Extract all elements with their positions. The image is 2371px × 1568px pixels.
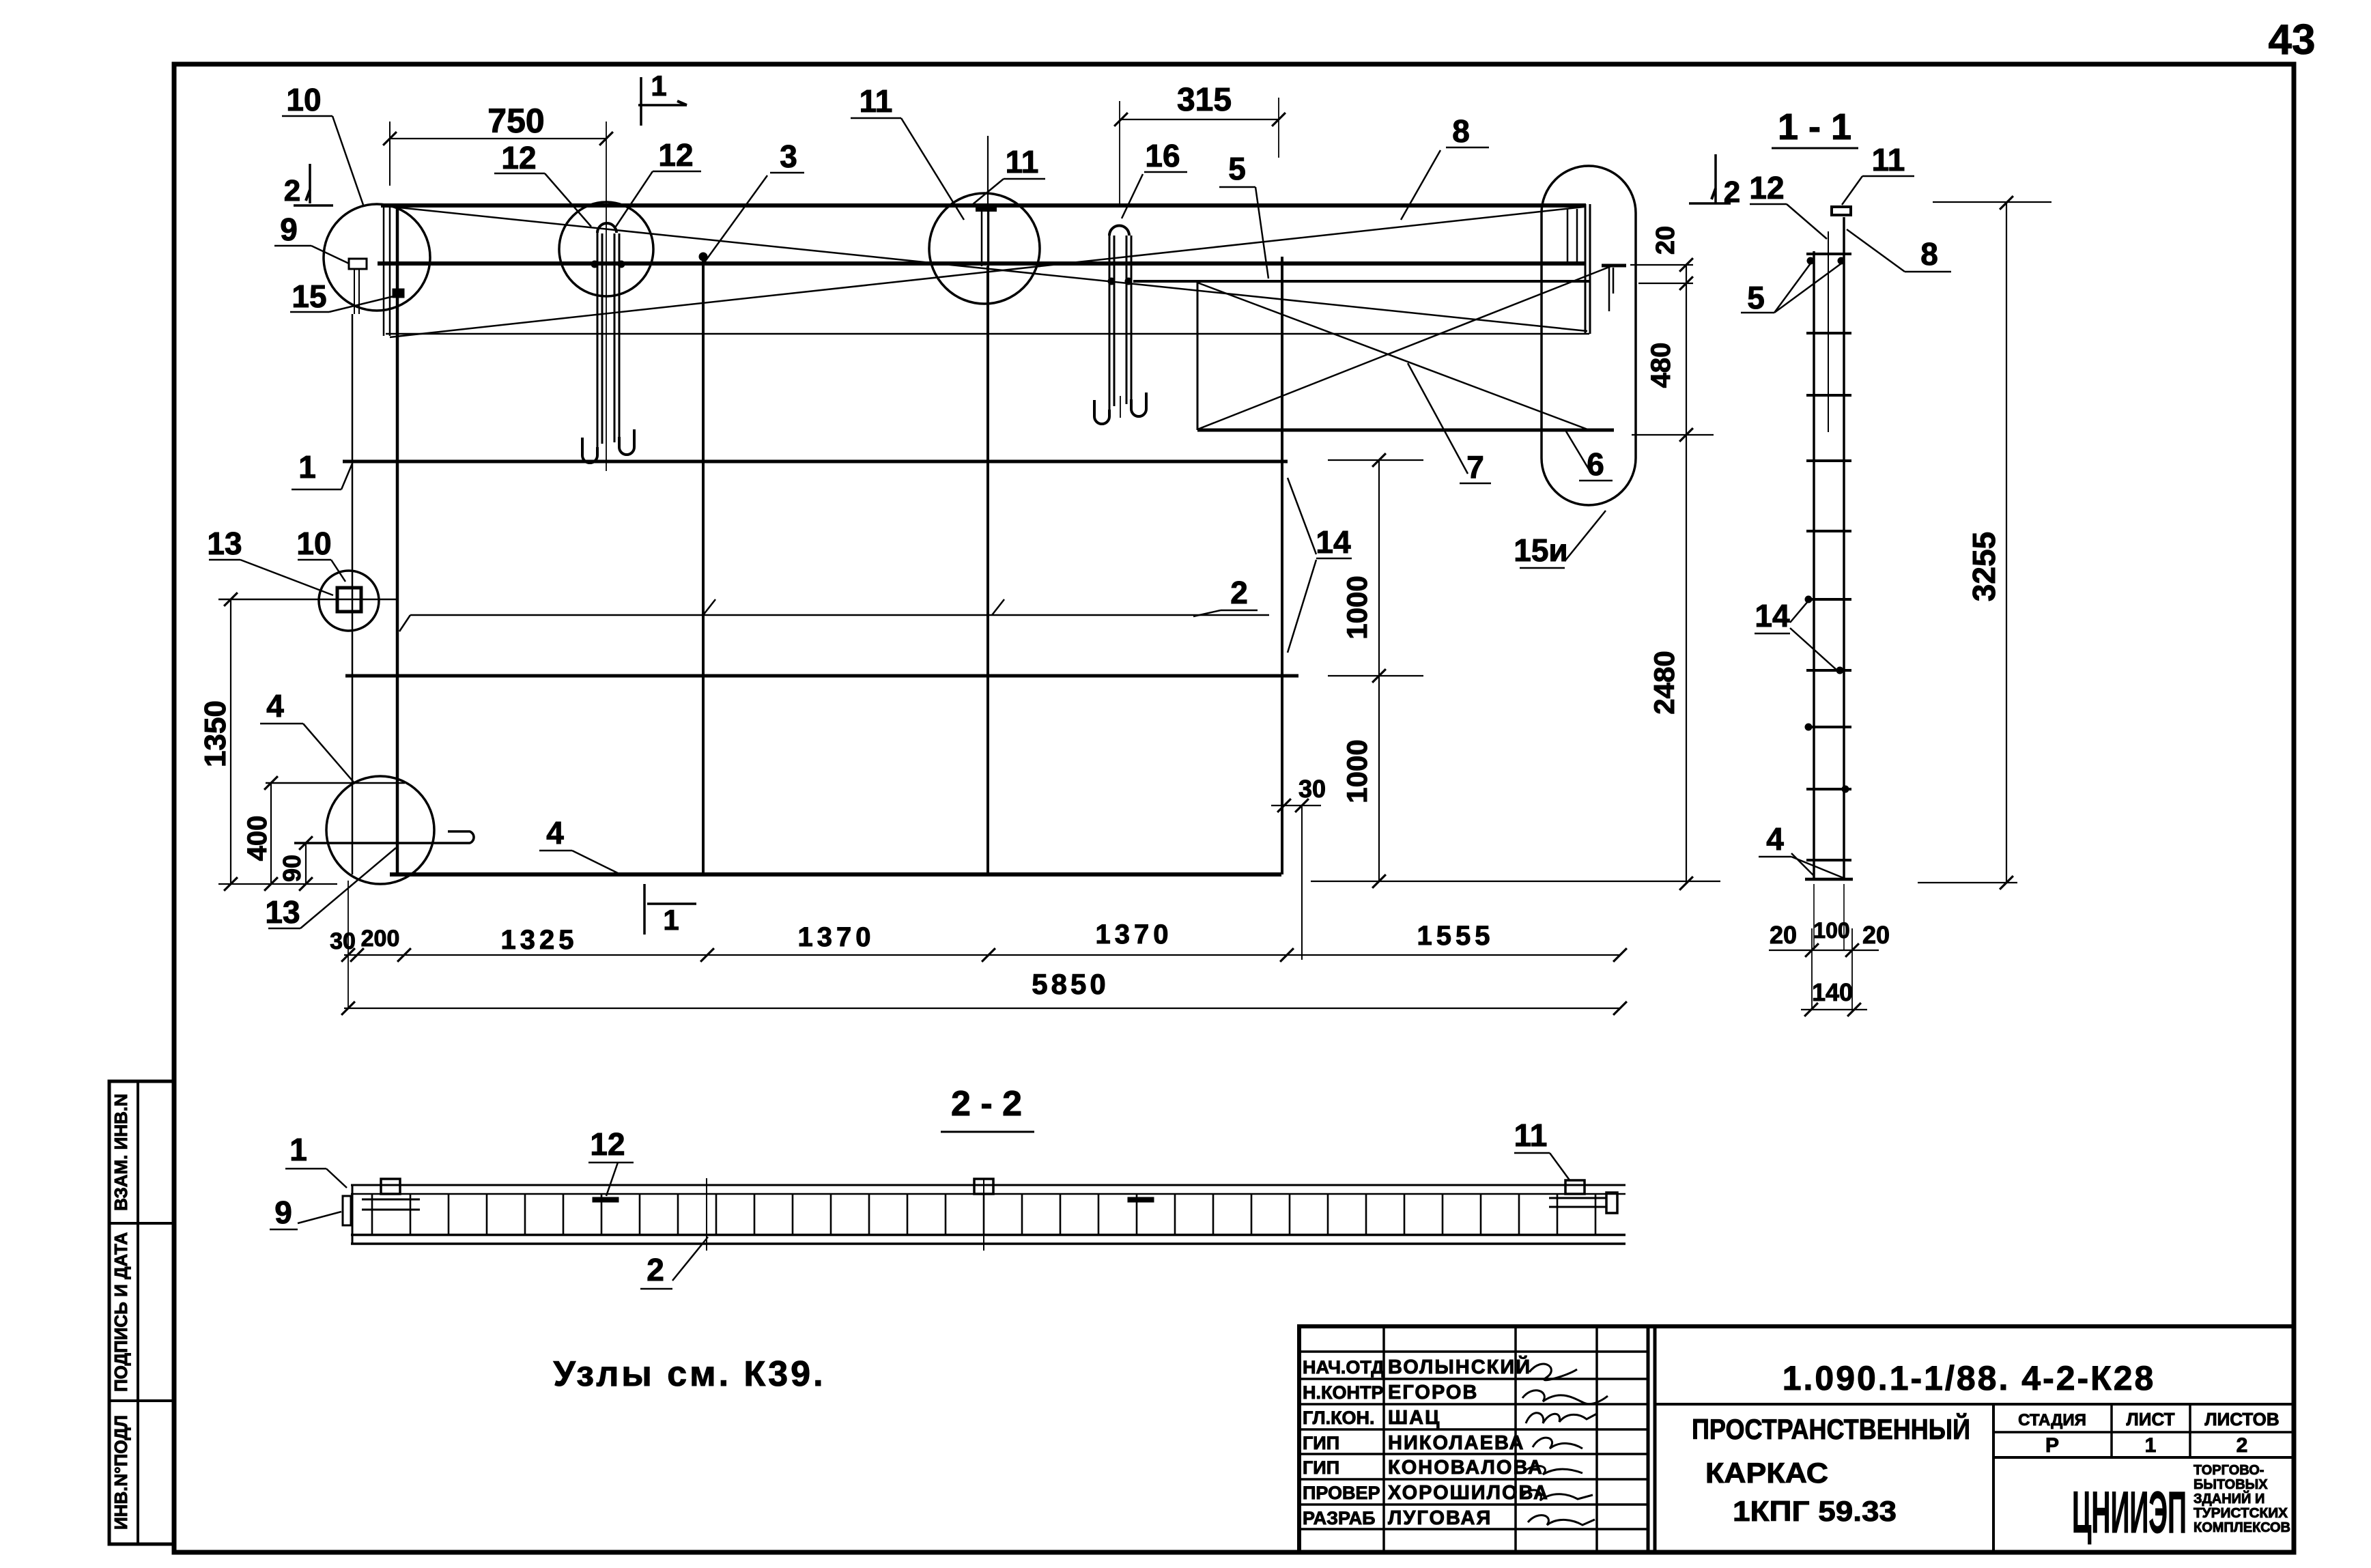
svg-text:СТАДИЯ: СТАДИЯ <box>2018 1411 2086 1429</box>
svg-text:НАЧ.ОТД: НАЧ.ОТД <box>1303 1357 1384 1378</box>
svg-text:10: 10 <box>296 526 331 561</box>
svg-text:ПРОСТРАНСТВЕННЫЙ: ПРОСТРАНСТВЕННЫЙ <box>1692 1412 1970 1445</box>
svg-text:ЦНИИЭП: ЦНИИЭП <box>2072 1480 2187 1545</box>
svg-text:ЛИСТОВ: ЛИСТОВ <box>2204 1409 2279 1429</box>
svg-text:4: 4 <box>1766 821 1784 857</box>
svg-text:14: 14 <box>1755 598 1790 633</box>
svg-text:9: 9 <box>274 1195 292 1230</box>
svg-text:1: 1 <box>298 449 316 485</box>
svg-text:750: 750 <box>487 102 544 140</box>
svg-text:1350: 1350 <box>199 700 232 767</box>
svg-text:1000: 1000 <box>1341 739 1373 803</box>
svg-text:Р: Р <box>2045 1434 2059 1457</box>
svg-text:20: 20 <box>1862 921 1890 949</box>
svg-text:30: 30 <box>1298 775 1326 803</box>
svg-text:ВОЛЫНСКИЙ: ВОЛЫНСКИЙ <box>1388 1355 1531 1378</box>
svg-text:30: 30 <box>330 928 356 954</box>
svg-text:200: 200 <box>361 926 400 952</box>
svg-text:20: 20 <box>1770 921 1797 949</box>
svg-text:ТУРИСТСКИХ: ТУРИСТСКИХ <box>2193 1506 2288 1521</box>
svg-text:11: 11 <box>1872 142 1905 177</box>
svg-text:1000: 1000 <box>1341 575 1373 639</box>
svg-text:12: 12 <box>501 140 536 175</box>
svg-text:5850: 5850 <box>1032 968 1109 1000</box>
svg-text:ЕГОРОВ: ЕГОРОВ <box>1388 1382 1478 1403</box>
svg-text:1370: 1370 <box>1096 920 1173 950</box>
svg-text:3255: 3255 <box>1966 532 2002 601</box>
svg-text:2: 2 <box>284 174 300 208</box>
svg-text:2480: 2480 <box>1648 651 1680 714</box>
svg-text:БЫТОВЫХ: БЫТОВЫХ <box>2193 1477 2268 1492</box>
svg-text:Н.КОНТР: Н.КОНТР <box>1303 1382 1383 1403</box>
svg-text:4: 4 <box>546 815 564 851</box>
svg-text:1: 1 <box>651 70 666 102</box>
svg-text:12: 12 <box>1749 170 1784 205</box>
svg-text:2: 2 <box>1230 575 1248 610</box>
svg-text:13: 13 <box>207 526 242 561</box>
svg-text:90: 90 <box>278 855 306 882</box>
svg-text:ИНВ.N°ПОДЛ: ИНВ.N°ПОДЛ <box>111 1415 131 1530</box>
svg-text:100: 100 <box>1813 918 1849 943</box>
svg-text:КОНОВАЛОВА: КОНОВАЛОВА <box>1388 1457 1544 1479</box>
svg-text:1325: 1325 <box>501 925 578 955</box>
svg-text:1370: 1370 <box>798 922 875 952</box>
svg-text:КАРКАС: КАРКАС <box>1705 1457 1828 1489</box>
svg-text:3: 3 <box>780 139 797 174</box>
svg-text:15и: 15и <box>1514 532 1567 568</box>
svg-text:2 - 2: 2 - 2 <box>951 1084 1022 1124</box>
svg-text:ГЛ.КОН.: ГЛ.КОН. <box>1303 1408 1375 1428</box>
svg-text:5: 5 <box>1228 151 1246 186</box>
svg-text:2: 2 <box>647 1252 664 1287</box>
svg-text:9: 9 <box>280 212 298 247</box>
svg-text:1555: 1555 <box>1417 921 1494 951</box>
svg-text:Узлы см. К39.: Узлы см. К39. <box>553 1354 825 1394</box>
svg-text:ПРОВЕР: ПРОВЕР <box>1303 1483 1380 1503</box>
svg-text:ГИП: ГИП <box>1303 1457 1339 1478</box>
svg-text:15: 15 <box>292 279 326 314</box>
svg-text:ЗДАНИЙ И: ЗДАНИЙ И <box>2193 1490 2264 1507</box>
svg-text:ШАЦ: ШАЦ <box>1388 1407 1440 1429</box>
svg-text:ПОДПИСЬ И ДАТА: ПОДПИСЬ И ДАТА <box>111 1232 131 1392</box>
svg-text:11: 11 <box>1006 144 1039 180</box>
svg-text:1: 1 <box>2145 1434 2157 1457</box>
svg-text:480: 480 <box>1646 343 1676 388</box>
svg-text:ЛУГОВАЯ: ЛУГОВАЯ <box>1388 1507 1492 1529</box>
svg-text:14: 14 <box>1316 524 1351 560</box>
svg-text:10: 10 <box>286 82 321 117</box>
svg-text:12: 12 <box>658 137 693 173</box>
svg-text:400: 400 <box>242 816 272 861</box>
svg-text:4: 4 <box>266 688 284 724</box>
svg-text:8: 8 <box>1920 236 1938 272</box>
svg-text:7: 7 <box>1466 449 1484 485</box>
svg-text:ЛИСТ: ЛИСТ <box>2127 1409 2175 1429</box>
svg-text:1: 1 <box>663 904 679 936</box>
svg-text:5: 5 <box>1747 280 1765 315</box>
svg-text:315: 315 <box>1177 82 1232 118</box>
svg-text:2: 2 <box>1724 175 1740 209</box>
svg-text:ВЗАМ. ИНВ.N: ВЗАМ. ИНВ.N <box>111 1094 131 1211</box>
svg-text:ГИП: ГИП <box>1303 1433 1339 1453</box>
svg-text:НИКОЛАЕВА: НИКОЛАЕВА <box>1388 1432 1524 1454</box>
svg-text:16: 16 <box>1145 138 1180 173</box>
svg-text:140: 140 <box>1812 978 1853 1006</box>
svg-text:11: 11 <box>1514 1117 1548 1153</box>
svg-text:43: 43 <box>2269 16 2316 63</box>
svg-text:ТОРГОВО-: ТОРГОВО- <box>2193 1463 2264 1478</box>
svg-text:1 - 1: 1 - 1 <box>1778 106 1851 147</box>
svg-text:1КПГ 59.33: 1КПГ 59.33 <box>1733 1495 1897 1527</box>
svg-text:6: 6 <box>1587 446 1604 482</box>
svg-text:РАЗРАБ: РАЗРАБ <box>1303 1508 1376 1528</box>
svg-text:12: 12 <box>590 1126 625 1162</box>
svg-text:13: 13 <box>265 894 300 930</box>
svg-text:1.090.1-1/88. 4-2-К28: 1.090.1-1/88. 4-2-К28 <box>1783 1359 2156 1397</box>
svg-text:20: 20 <box>1651 226 1680 255</box>
svg-text:2: 2 <box>2237 1434 2248 1457</box>
svg-text:1: 1 <box>289 1132 307 1167</box>
svg-text:11: 11 <box>860 83 893 119</box>
svg-text:8: 8 <box>1452 113 1470 149</box>
svg-text:КОМПЛЕКСОВ: КОМПЛЕКСОВ <box>2193 1520 2290 1535</box>
